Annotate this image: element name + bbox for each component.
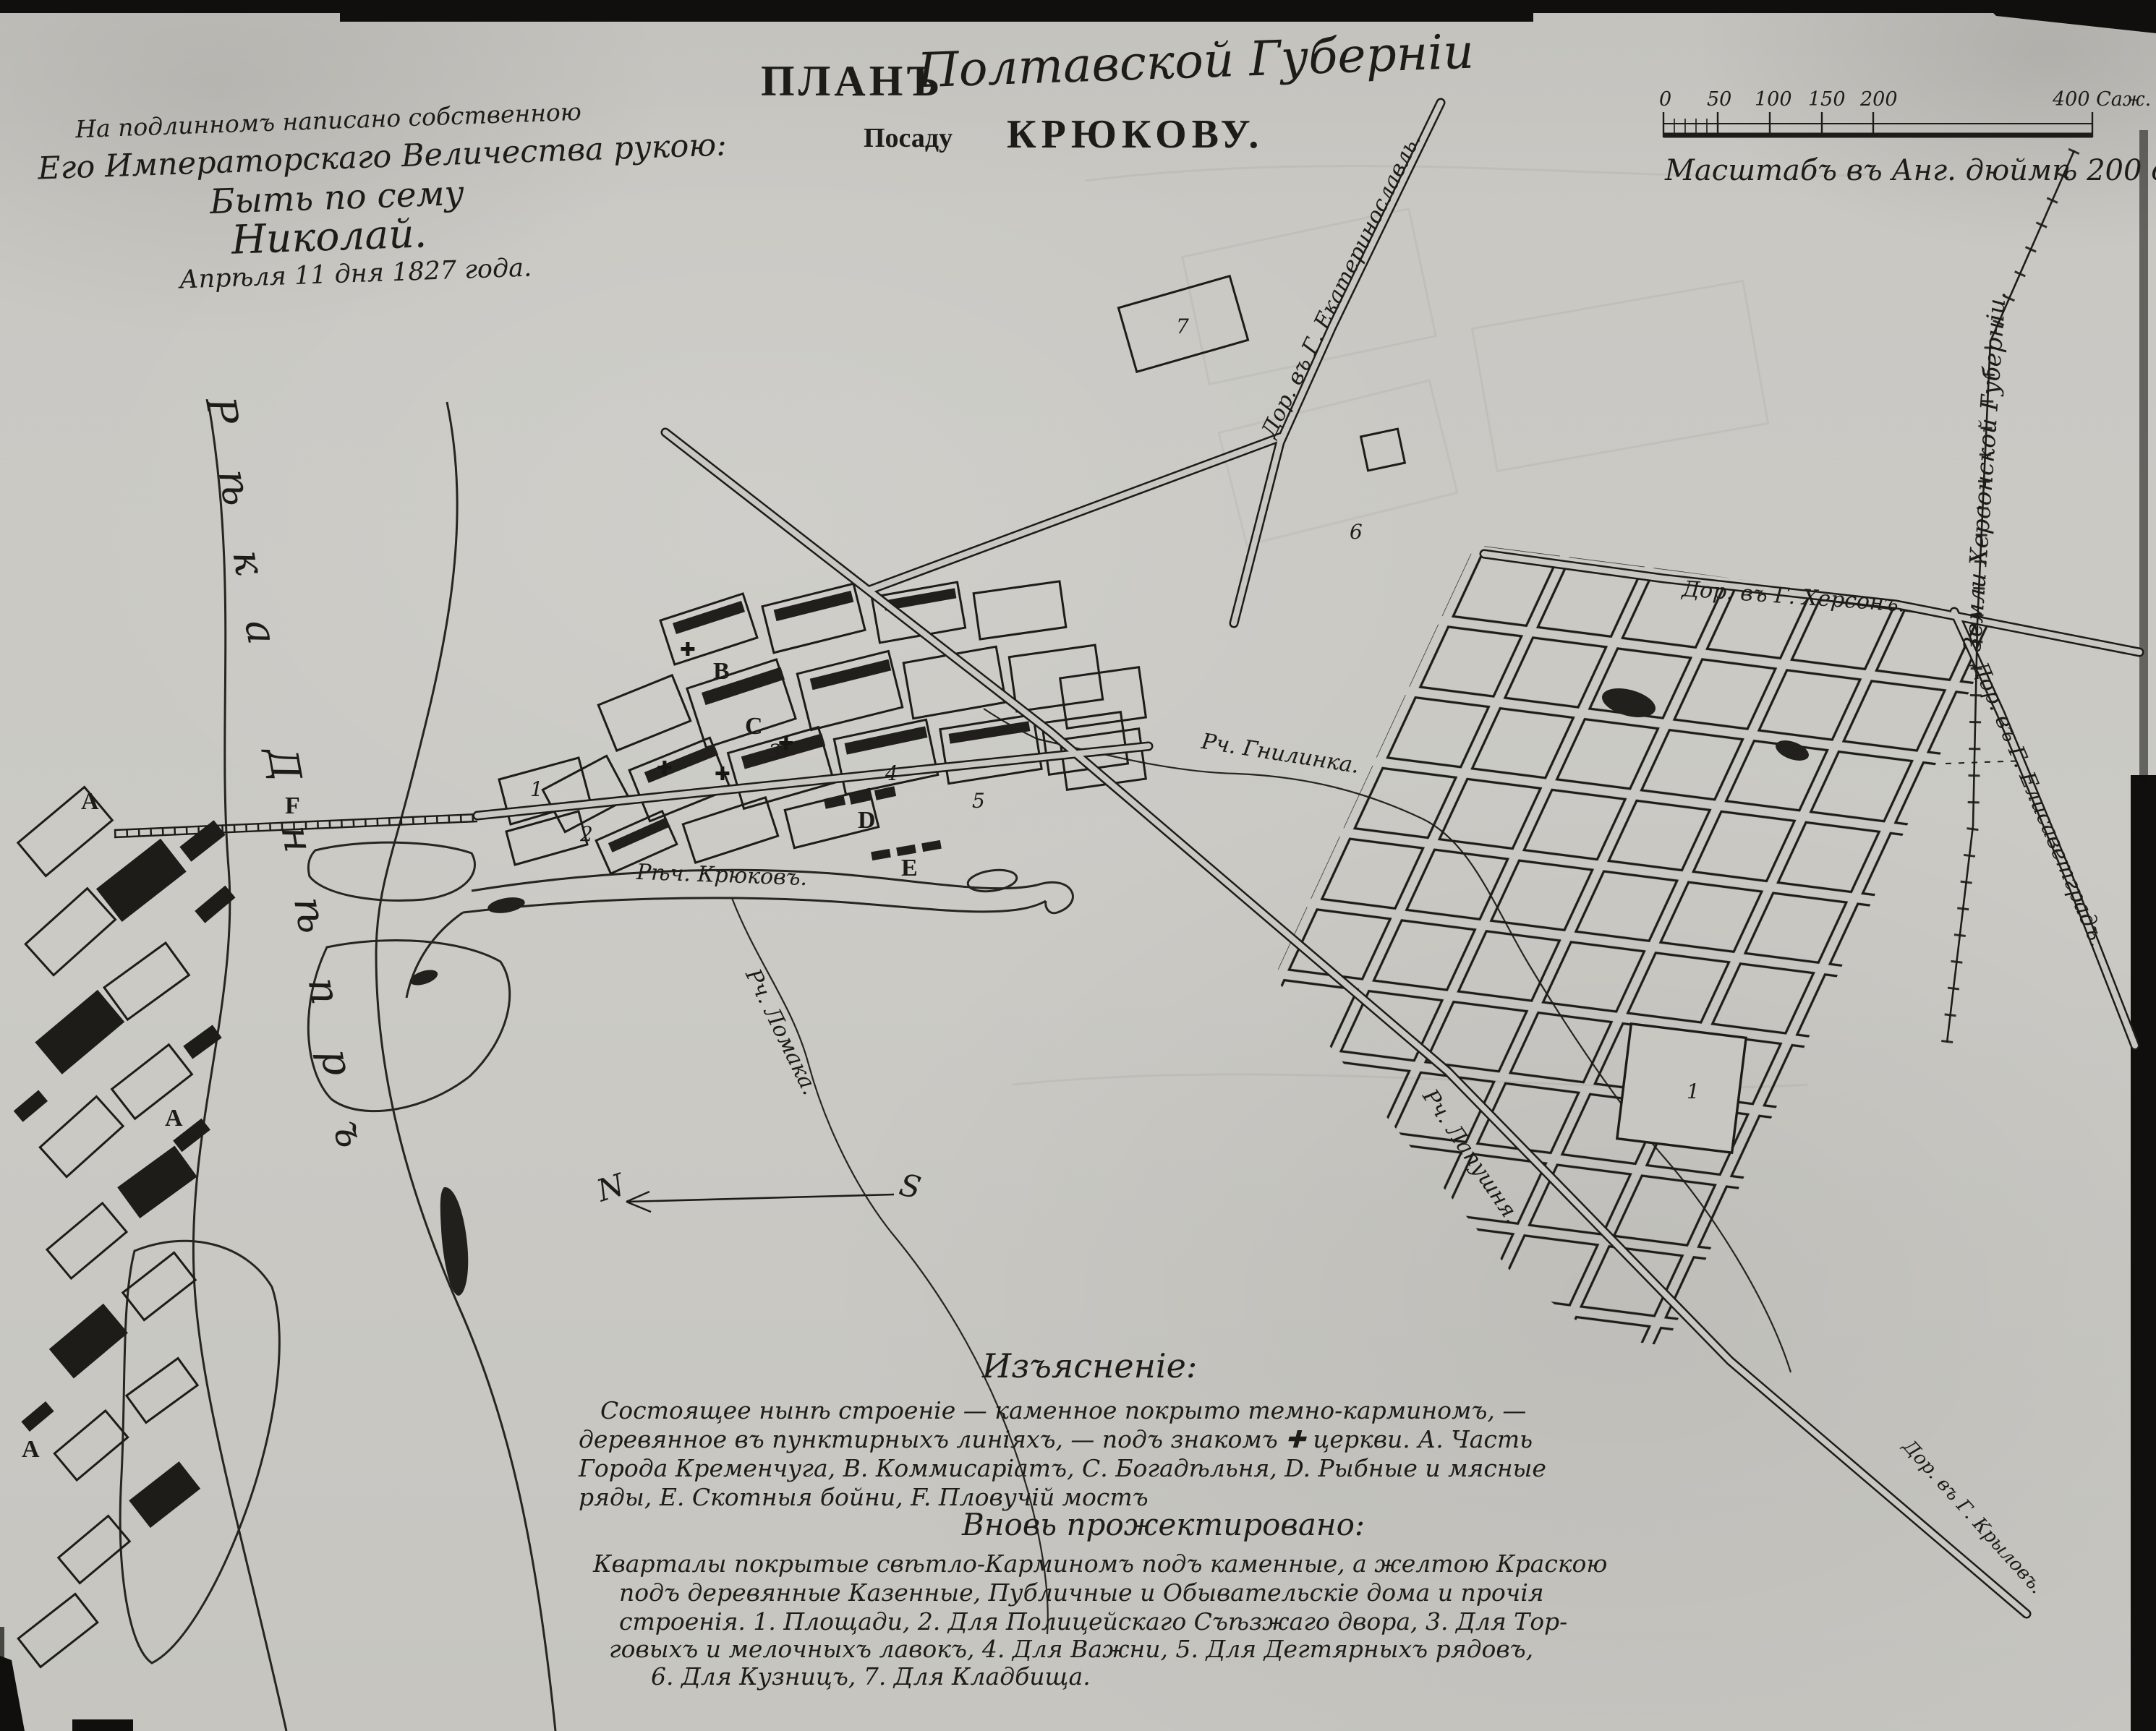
church-icon-3: ✚ [778, 735, 794, 753]
scale-caption: Масштабъ въ Анг. дюймѣ 200 саженъ. [1665, 156, 2156, 185]
imperial-note-signature: Николай. [231, 213, 427, 260]
scale-tick-100: 100 [1755, 90, 1792, 109]
legend-body2-line5: 6. Для Кузницъ, 7. Для Кладбища. [651, 1664, 1091, 1688]
legend-body2-line2: подъ деревянные Казенные, Публичные и Об… [619, 1581, 1544, 1604]
legend-body1-line1: Состоящее нынѣ строеніе — каменное покры… [600, 1398, 1526, 1422]
ref-letter-f: F [285, 794, 300, 819]
legend-body1-line3: Города Кременчуга, В. Коммисаріатъ, С. Б… [579, 1456, 1546, 1480]
scale-end-label: 400 Саж. [2053, 90, 2151, 109]
scale-tick-150: 150 [1808, 90, 1846, 109]
ref-number-7: 7 [1176, 317, 1189, 337]
ref-letter-a-1: A [81, 790, 99, 814]
ref-letter-c: C [745, 714, 763, 739]
kremenchug-blocks [14, 787, 236, 1667]
ref-letter-d: D [858, 808, 876, 833]
scale-tick-0: 0 [1659, 90, 1671, 109]
scale-bar [1663, 112, 2092, 137]
legend-body2-line1: Кварталы покрытые свѣтло-Карминомъ подъ … [593, 1552, 1607, 1576]
kryukov-old-town [499, 276, 1405, 873]
ref-letter-a-2: A [165, 1106, 183, 1131]
scale-tick-50: 50 [1707, 90, 1731, 109]
legend-body1-line2: деревянное въ пунктирныхъ линіяхъ, — под… [579, 1427, 1533, 1451]
ref-letter-b: B [713, 659, 730, 684]
ref-number-1a: 1 [530, 779, 543, 800]
projected-quarters [1135, 545, 2006, 1346]
church-icon-4: ✚ [680, 641, 696, 659]
ref-number-5: 5 [972, 791, 985, 811]
ref-number-4: 4 [885, 764, 898, 784]
title-plan: ПЛАНЪ [761, 59, 943, 103]
legend-body2-line3: строенія. 1. Площади, 2. Для Полицейскаг… [619, 1610, 1567, 1633]
ref-letter-a-3: A [22, 1437, 40, 1462]
dark-islets [408, 895, 526, 1296]
title-kryukov: КРЮКОВУ. [1007, 114, 1264, 155]
historic-map-sheet: ПЛАНЪ Полтавской Губерніи Посаду КРЮКОВУ… [0, 0, 2156, 1731]
ref-number-1b: 1 [1687, 1082, 1700, 1102]
ref-number-2: 2 [580, 824, 593, 845]
church-icon-1: ✚ [657, 759, 673, 778]
legend-subheader: Вновь прожектировано: [962, 1510, 1365, 1540]
ref-number-6: 6 [1350, 522, 1363, 542]
church-icon-2: ✚ [715, 765, 730, 784]
scale-tick-200: 200 [1860, 90, 1898, 109]
ref-letter-e: E [901, 856, 918, 881]
compass-line [626, 1192, 894, 1212]
river-kryukov-label: Рѣч. Крюковъ. [636, 862, 808, 889]
legend-header: Изъясненіе: [982, 1349, 1197, 1382]
legend-body2-line4: говыхъ и мелочныхъ лавокъ, 4. Для Важни,… [609, 1637, 1533, 1661]
title-posad: Посаду [864, 124, 953, 152]
legend-body1-line4: ряды, Е. Скотныя бойни, F. Пловучій мост… [579, 1485, 1149, 1509]
